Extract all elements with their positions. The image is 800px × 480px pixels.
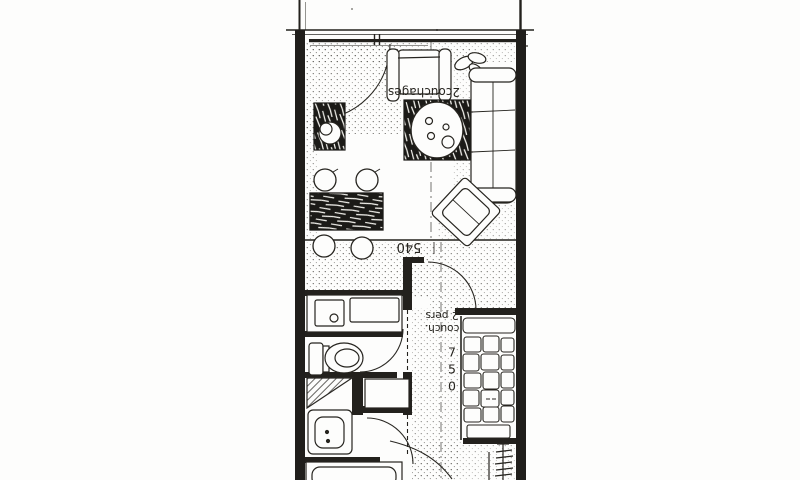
bed-footboard xyxy=(467,425,510,438)
sofa-bolster-top xyxy=(469,68,516,82)
dining-table xyxy=(310,193,383,230)
table-item xyxy=(442,136,454,148)
toilet-tank xyxy=(309,343,323,375)
scan-speck xyxy=(526,45,528,47)
quilt-patch xyxy=(483,336,499,352)
shower-drain-dot xyxy=(327,440,330,443)
bed-quilt xyxy=(463,336,514,422)
right-exterior-wall xyxy=(516,30,526,480)
shower-drain-dot xyxy=(326,431,329,434)
label-sleeps: 2couchages xyxy=(388,85,460,99)
bottom-stipple xyxy=(412,440,516,480)
quilt-patch xyxy=(501,338,514,352)
left-exterior-wall xyxy=(295,30,305,480)
label-bed-caption-line1: couch. xyxy=(425,322,460,334)
quilt-patch xyxy=(501,355,514,370)
quilt-patch xyxy=(483,372,499,389)
round-table xyxy=(411,102,463,158)
kitchen-sink xyxy=(315,300,344,326)
bed-pillow xyxy=(463,318,515,333)
floor-plan-scan: 2couchages 540 couch. 2 pers 750 xyxy=(0,0,800,480)
quilt-patch xyxy=(464,373,481,388)
dining-stool xyxy=(313,235,335,257)
hatched-shelf xyxy=(307,378,352,408)
dining-stool xyxy=(314,169,336,191)
bed xyxy=(461,316,515,440)
closet xyxy=(365,379,409,408)
bathtub-basin xyxy=(312,467,396,480)
quilt-patch xyxy=(483,407,499,422)
table-item xyxy=(428,133,435,140)
table-item xyxy=(426,118,433,125)
dining-stool xyxy=(351,237,373,259)
bathtub xyxy=(306,462,402,480)
kitchen-counter xyxy=(307,295,402,332)
plant-pot-inner xyxy=(320,123,332,135)
hall-wall-stub xyxy=(403,257,412,310)
toilet xyxy=(309,343,363,375)
quilt-patch xyxy=(501,390,514,405)
round-table-top xyxy=(411,102,463,158)
dining-stool xyxy=(356,169,378,191)
plan-canvas: 2couchages 540 couch. 2 pers 750 xyxy=(0,0,800,480)
quilt-patch xyxy=(464,408,481,422)
quilt-patch xyxy=(481,354,499,370)
label-bed-caption: couch. 2 pers xyxy=(425,309,460,334)
shower-basin xyxy=(315,417,344,448)
label-bed-caption-line2: 2 pers xyxy=(426,309,459,321)
sink-drain xyxy=(330,314,338,322)
label-dim-540: 540 xyxy=(397,239,422,254)
scan-speck xyxy=(351,8,353,10)
hall-right-stipple xyxy=(430,242,516,308)
quilt-patch xyxy=(463,390,479,406)
shower-tray xyxy=(308,410,352,454)
bed-wall-top xyxy=(455,308,516,315)
cooktop xyxy=(350,298,399,322)
quilt-patch xyxy=(501,372,514,388)
sofa-body xyxy=(471,70,516,203)
sofa xyxy=(465,68,516,203)
stool-tick xyxy=(375,169,380,172)
bed-wall-bottom xyxy=(463,438,516,444)
stool-tick xyxy=(333,169,338,172)
label-dim-750: 750 xyxy=(445,345,460,396)
quilt-patch xyxy=(464,337,481,352)
table-item xyxy=(443,124,449,130)
toilet-bowl-inner xyxy=(335,349,359,367)
window-front xyxy=(309,39,516,42)
quilt-patch xyxy=(501,406,514,422)
quilt-patch xyxy=(463,354,479,371)
